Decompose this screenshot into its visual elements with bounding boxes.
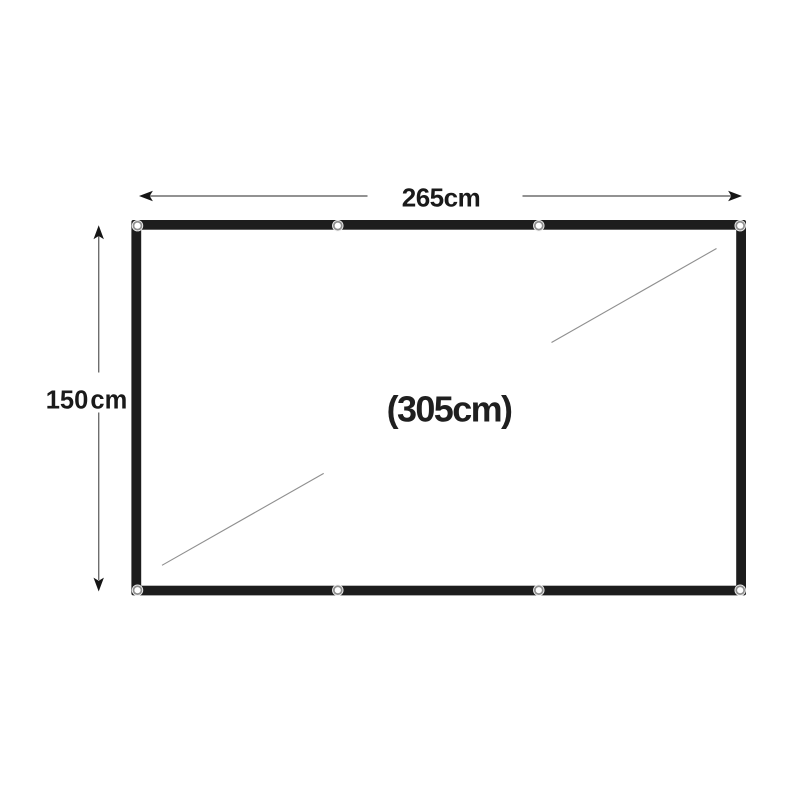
svg-text:(305cm): (305cm) (387, 389, 512, 430)
svg-text:150 cm: 150 cm (46, 386, 128, 414)
svg-text:265cm: 265cm (402, 183, 480, 213)
